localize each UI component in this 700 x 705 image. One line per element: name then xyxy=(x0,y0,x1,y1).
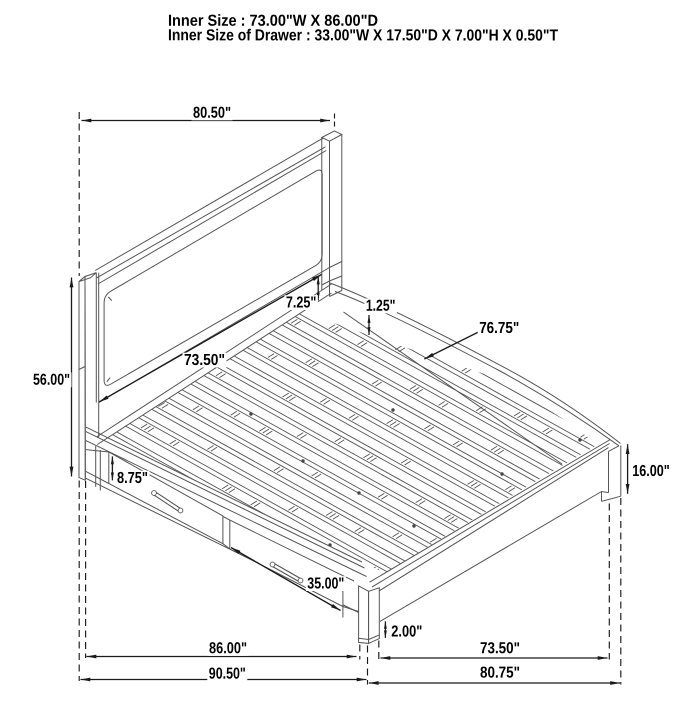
svg-text:76.75": 76.75" xyxy=(479,320,519,337)
svg-text:73.50": 73.50" xyxy=(480,640,520,657)
svg-text:80.75": 80.75" xyxy=(480,665,520,682)
svg-text:73.50": 73.50" xyxy=(184,352,225,369)
svg-text:90.50": 90.50" xyxy=(209,666,246,683)
svg-text:86.00": 86.00" xyxy=(209,640,247,657)
svg-text:80.50": 80.50" xyxy=(193,105,231,122)
svg-text:16.00": 16.00" xyxy=(632,463,670,480)
svg-text:8.75": 8.75" xyxy=(117,470,148,487)
svg-text:1.25": 1.25" xyxy=(366,298,396,315)
svg-text:35.00": 35.00" xyxy=(307,576,344,593)
svg-text:Inner Size of Drawer : 33.00"W: Inner Size of Drawer : 33.00"W X 17.50"D… xyxy=(168,27,558,44)
svg-text:56.00": 56.00" xyxy=(33,372,70,389)
svg-text:7.25": 7.25" xyxy=(286,295,317,312)
svg-text:2.00": 2.00" xyxy=(391,624,422,641)
